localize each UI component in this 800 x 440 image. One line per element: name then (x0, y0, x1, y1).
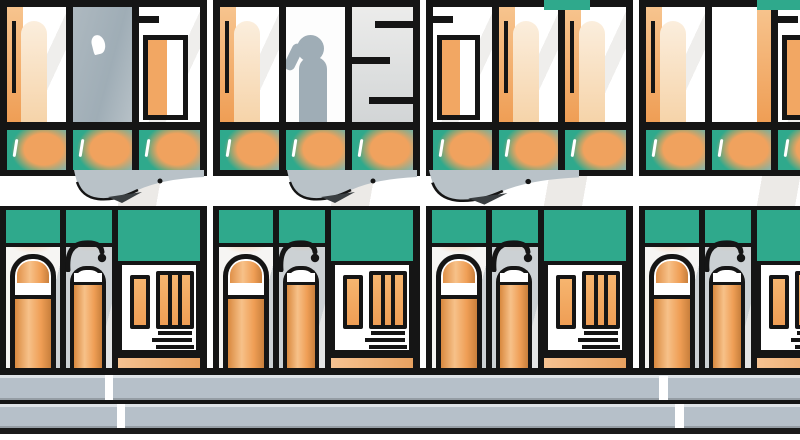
teal-window (432, 210, 486, 247)
curb-break (105, 375, 113, 400)
building-module (213, 0, 420, 368)
facade-top-frame (426, 0, 633, 7)
ground-floor (213, 210, 420, 368)
glass-reflection (90, 34, 107, 56)
meter-dome (17, 261, 49, 283)
doorway (544, 261, 626, 354)
meter-body (441, 299, 477, 368)
window-mullion (213, 0, 220, 176)
door-transom (118, 210, 200, 261)
door-step (152, 338, 192, 342)
curtain (21, 21, 47, 122)
frame-stub (139, 16, 159, 23)
window-mullion (492, 0, 499, 176)
meter-cap (74, 273, 102, 282)
small-accent-window (565, 130, 626, 170)
parking-meter (649, 254, 695, 368)
meter-cap (500, 273, 528, 282)
door-base (544, 354, 626, 368)
door-step (158, 331, 192, 335)
window-mullion (639, 0, 646, 176)
small-accent-window (7, 130, 66, 170)
meter-cap (654, 284, 690, 295)
building-module (0, 0, 207, 368)
meter-cap (15, 284, 51, 295)
frame-stub (778, 16, 798, 23)
door-base (331, 354, 413, 368)
small-accent-window (712, 130, 771, 170)
window-mullion (426, 0, 433, 176)
parking-meter (496, 266, 532, 368)
small-accent-window (139, 130, 200, 170)
parking-meter (436, 254, 482, 368)
ground-floor (0, 210, 207, 368)
teal-window (6, 210, 60, 247)
meter-dome (443, 261, 475, 283)
window-bay (220, 7, 279, 122)
window-frame-bar (504, 21, 508, 93)
facade-top-frame (213, 0, 420, 7)
window-frame-bar (225, 21, 229, 93)
door-window (130, 275, 150, 329)
curtain (234, 21, 260, 122)
window-sill (639, 122, 800, 130)
curb-break (117, 404, 125, 428)
meter-hook (62, 236, 108, 272)
inner-window (782, 35, 800, 120)
door-window (556, 275, 576, 329)
balcony-rail (369, 97, 413, 104)
window-bay (778, 7, 800, 122)
window-bay (646, 7, 705, 122)
meter-body (228, 299, 264, 368)
curb-break (659, 376, 668, 400)
window-mullion (558, 0, 565, 176)
window-sill (426, 122, 633, 130)
sidewalk-upper (0, 375, 800, 400)
window-mullion (200, 0, 207, 176)
curb-break (675, 404, 684, 428)
door-window (369, 271, 407, 329)
door-window (343, 275, 363, 329)
window-sill (213, 122, 420, 130)
road-edge-line (0, 428, 800, 434)
window-frame-bar (651, 21, 655, 93)
door-window (769, 275, 789, 329)
door-window (156, 271, 194, 329)
inner-window (437, 35, 480, 120)
meter-body (74, 285, 102, 368)
balcony-rail (375, 21, 413, 28)
facade-row (0, 0, 800, 368)
meter-dome (230, 261, 262, 283)
window-mullion (771, 0, 778, 176)
curtain (579, 21, 605, 122)
parking-meter (10, 254, 56, 368)
wall-divider (626, 210, 633, 368)
meter-hook (488, 236, 534, 272)
window-bay (352, 7, 413, 122)
door-step (791, 338, 800, 342)
parking-meter (70, 266, 106, 368)
teal-window (219, 210, 273, 247)
small-accent-window (646, 130, 705, 170)
meter-body (500, 285, 528, 368)
door-step (371, 331, 405, 335)
window-frame-bar (12, 21, 16, 93)
meter-cap (287, 273, 315, 282)
small-accent-window (778, 130, 800, 170)
building-module (639, 0, 800, 368)
frame-stub (433, 16, 453, 23)
door-step (795, 345, 800, 349)
ground-floor (639, 210, 800, 368)
small-accent-window (433, 130, 492, 170)
building-base-line (0, 368, 800, 375)
building-module (426, 0, 633, 368)
parking-meter (709, 266, 745, 368)
curtain (513, 21, 539, 122)
window-bay (286, 7, 345, 122)
wall-divider (200, 210, 207, 368)
window-bay (433, 7, 492, 122)
door-step (584, 331, 618, 335)
facade-illustration (0, 0, 800, 440)
ground-floor (426, 210, 633, 368)
small-accent-window (220, 130, 279, 170)
window-bay (139, 7, 200, 122)
curtain-accent-column (757, 7, 771, 122)
person-silhouette (286, 7, 345, 122)
meter-hook (701, 236, 747, 272)
door-window (795, 271, 800, 329)
meter-body (654, 299, 690, 368)
door-base (757, 354, 800, 368)
meter-dome (656, 261, 688, 283)
door-step (156, 345, 194, 349)
door-transom (757, 210, 800, 261)
person-torso (299, 57, 327, 122)
meter-body (287, 285, 315, 368)
door-window (582, 271, 620, 329)
window-mullion (0, 0, 7, 176)
window-sill (0, 122, 207, 130)
roof-accent (544, 0, 590, 10)
window-mullion (705, 0, 712, 176)
window-bay (712, 7, 771, 122)
window-bay (499, 7, 558, 122)
doorway (118, 261, 200, 354)
balcony-rail (352, 57, 390, 64)
doorway (757, 261, 800, 354)
parking-meter (283, 266, 319, 368)
door-step (582, 345, 620, 349)
roof-accent (757, 0, 800, 10)
window-mullion (66, 0, 73, 176)
small-accent-window (499, 130, 558, 170)
inner-window (143, 35, 188, 120)
window-bay (565, 7, 626, 122)
cornice-band (639, 176, 800, 206)
door-step (578, 338, 618, 342)
small-accent-window (352, 130, 413, 170)
small-accent-window (73, 130, 132, 170)
door-base (118, 354, 200, 368)
meter-hook (275, 236, 321, 272)
window-bay (7, 7, 66, 122)
facade-top-frame (0, 0, 207, 7)
teal-window (645, 210, 699, 247)
meter-cap (228, 284, 264, 295)
bird-silhouette (287, 170, 417, 210)
doorway (331, 261, 413, 354)
door-step (365, 338, 405, 342)
curtain (660, 21, 686, 122)
window-frame-bar (570, 21, 574, 93)
door-step (369, 345, 407, 349)
door-transom (331, 210, 413, 261)
wall-divider (413, 210, 420, 368)
meter-body (15, 299, 51, 368)
meter-cap (441, 284, 477, 295)
parking-meter (223, 254, 269, 368)
window-mullion (132, 0, 139, 176)
bird-silhouette (429, 170, 579, 212)
meter-cap (713, 273, 741, 282)
small-accent-window (286, 130, 345, 170)
window-mullion (626, 0, 633, 176)
bird-silhouette (74, 170, 204, 210)
window-bay (73, 7, 132, 122)
door-transom (544, 210, 626, 261)
window-mullion (345, 0, 352, 176)
window-mullion (413, 0, 420, 176)
window-mullion (279, 0, 286, 176)
meter-body (713, 285, 741, 368)
